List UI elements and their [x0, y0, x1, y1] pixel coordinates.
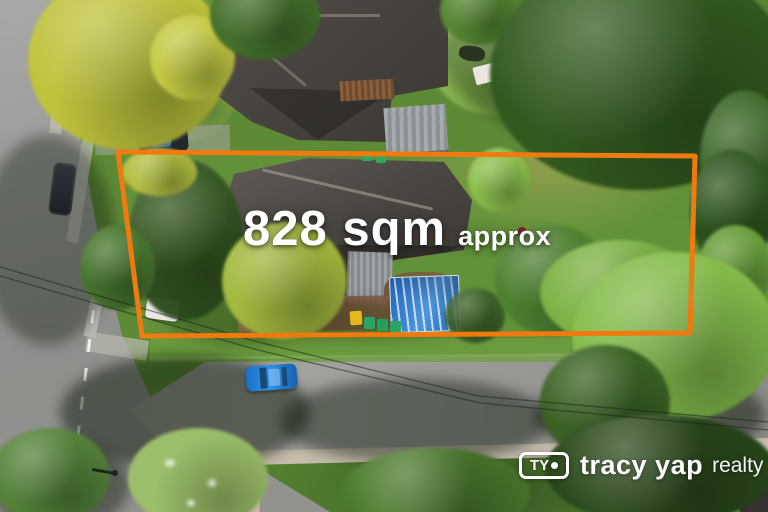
brand-monogram: TY [530, 457, 549, 474]
brand-watermark: TY tracy yap realty [519, 450, 763, 481]
brand-logo-mark: TY [519, 452, 569, 479]
area-value: 828 sqm [243, 201, 446, 257]
power-line [0, 267, 768, 422]
brand-logo-dot [551, 462, 558, 469]
brand-suffix: realty [712, 454, 763, 478]
area-qualifier: approx [458, 221, 551, 252]
brand-name: tracy yap [580, 450, 703, 481]
power-line [0, 276, 768, 430]
aerial-property-photo: 828 sqm approx TY tracy yap realty [0, 0, 768, 512]
area-label: 828 sqm approx [243, 201, 551, 257]
